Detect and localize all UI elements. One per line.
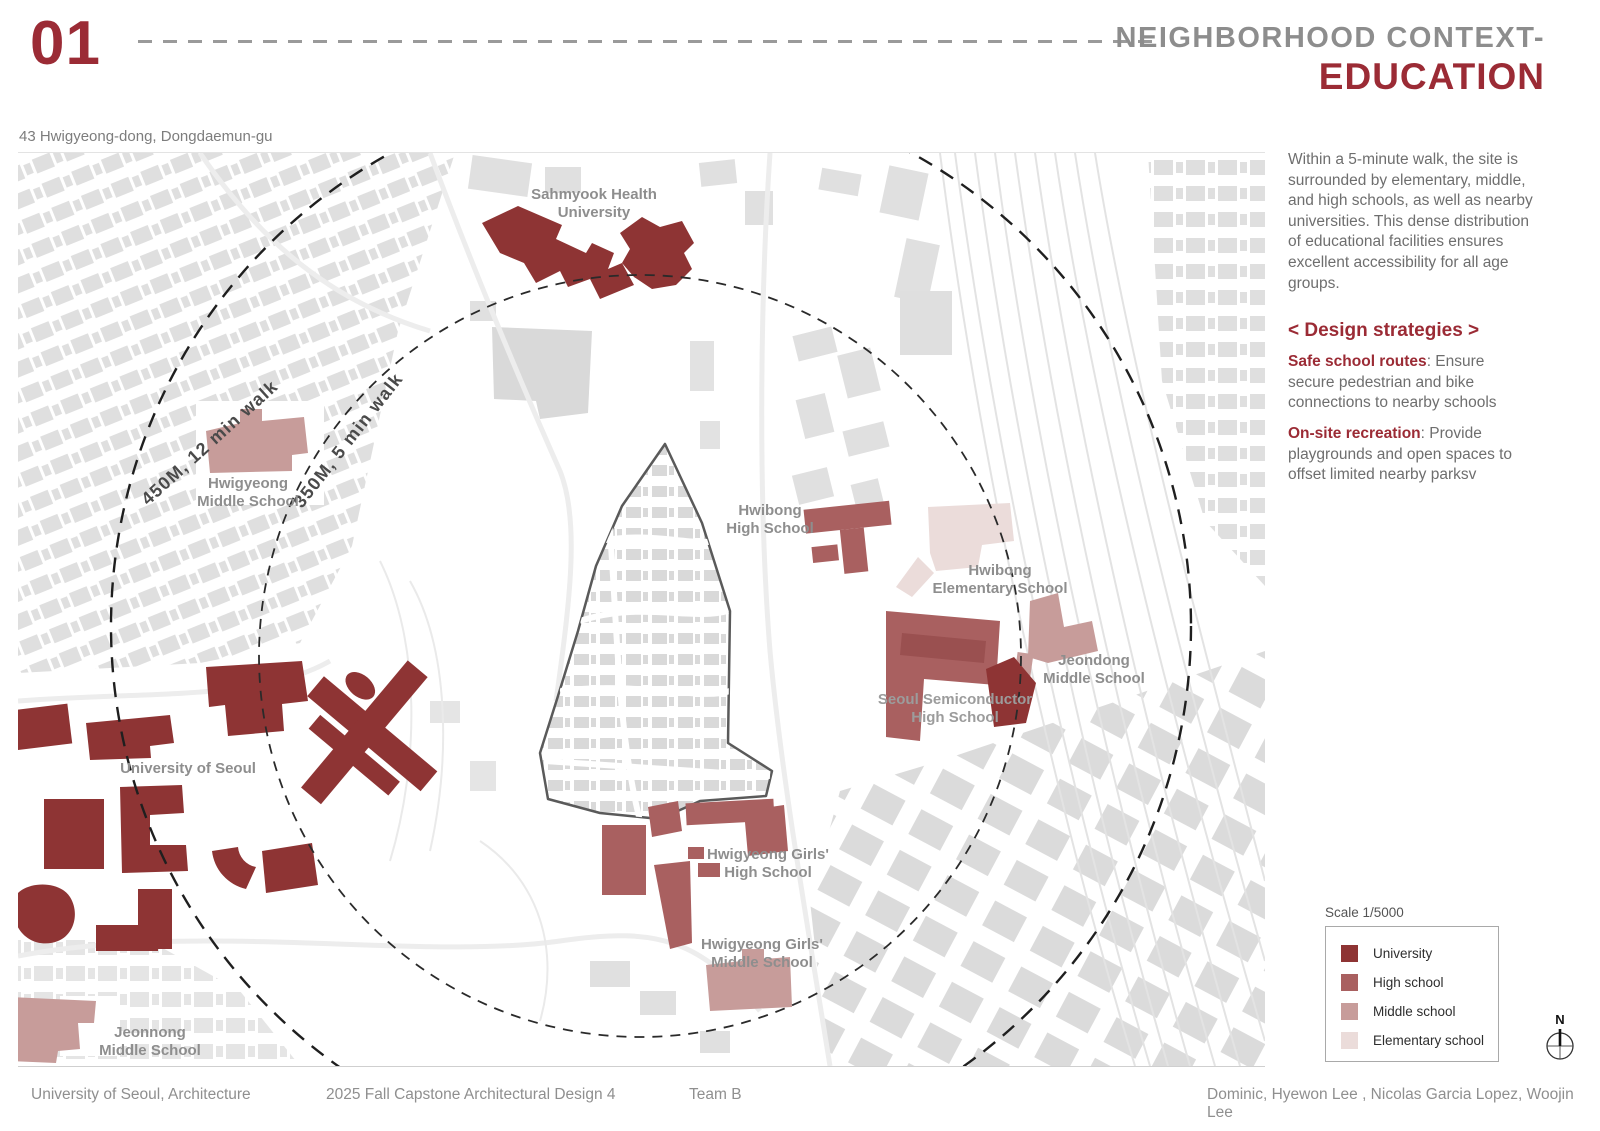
svg-text:Elementary School: Elementary School: [932, 580, 1067, 597]
presentation-board: 01 NEIGHBORHOOD CONTEXT- EDUCATION 43 Hw…: [0, 0, 1600, 1131]
footer-authors: Dominic, Hyewon Lee , Nicolas Garcia Lop…: [1207, 1086, 1600, 1122]
header-dashed-line: [138, 40, 1164, 43]
map-svg: 450M, 12 min walk 350M, 5 min walk Sahmy…: [18, 153, 1265, 1066]
map-scale-label: Scale 1/5000: [1325, 905, 1404, 920]
university-color-swatch: [1341, 945, 1358, 962]
page-number: 01: [30, 8, 101, 79]
svg-text:Middle School: Middle School: [711, 954, 813, 971]
elementary-school-color-swatch: [1341, 1032, 1358, 1049]
site-address: 43 Hwigyeong-dong, Dongdaemun-gu: [19, 128, 273, 145]
legend-item-elementary-school: Elementary school: [1326, 1026, 1498, 1055]
analysis-panel: Within a 5-minute walk, the site is surr…: [1288, 150, 1533, 486]
label-jeondong-middle: Jeondong: [1058, 652, 1130, 669]
strategy-on-site-recreation: On-site recreation: Provide playgrounds …: [1288, 424, 1533, 486]
legend-item-high-school: High school: [1326, 968, 1498, 997]
footer-school: University of Seoul, Architecture: [31, 1086, 251, 1104]
label-hwibong-high: Hwibong: [738, 502, 801, 519]
footer-team: Team B: [689, 1086, 742, 1104]
analysis-paragraph: Within a 5-minute walk, the site is surr…: [1288, 150, 1533, 294]
svg-text:High School: High School: [911, 709, 999, 726]
svg-text:University: University: [558, 204, 631, 221]
svg-text:Middle School: Middle School: [99, 1042, 201, 1059]
middle-school-color-swatch: [1341, 1003, 1358, 1020]
svg-text:Middle School: Middle School: [197, 493, 299, 510]
title-education: EDUCATION: [1116, 56, 1545, 98]
design-strategies-title: < Design strategies >: [1288, 320, 1533, 342]
label-girls-middle: Hwigyeong Girls': [701, 936, 823, 953]
label-university-of-seoul: University of Seoul: [120, 760, 256, 777]
label-girls-high: Hwigyeong Girls': [707, 846, 829, 863]
label-hwibong-elementary: Hwibong: [968, 562, 1031, 579]
footer-course: 2025 Fall Capstone Architectural Design …: [326, 1086, 616, 1104]
legend-item-university: University: [1326, 939, 1498, 968]
title-context: NEIGHBORHOOD CONTEXT-: [1116, 22, 1545, 55]
label-seoul-semiconductor: Seoul Semiconductor: [878, 691, 1032, 708]
svg-text:High School: High School: [726, 520, 814, 537]
strategy-safe-school-routes: Safe school routes: Ensure secure pedest…: [1288, 352, 1533, 414]
svg-text:High School: High School: [724, 864, 812, 881]
page-title: NEIGHBORHOOD CONTEXT- EDUCATION: [1116, 22, 1545, 98]
neighborhood-map: 450M, 12 min walk 350M, 5 min walk Sahmy…: [18, 152, 1265, 1067]
label-jeonnong-middle: Jeonnong: [114, 1024, 186, 1041]
compass-north-label: N: [1540, 1012, 1580, 1027]
legend: University High school Middle school Ele…: [1325, 926, 1499, 1062]
legend-item-middle-school: Middle school: [1326, 997, 1498, 1026]
compass-icon: [1540, 1027, 1580, 1063]
svg-text:Middle School: Middle School: [1043, 670, 1145, 687]
high-school-color-swatch: [1341, 974, 1358, 991]
north-compass: N: [1540, 1012, 1580, 1068]
label-sahmyook: Sahmyook Health: [531, 186, 657, 203]
label-hwigyeong-middle: Hwigyeong: [208, 475, 288, 492]
